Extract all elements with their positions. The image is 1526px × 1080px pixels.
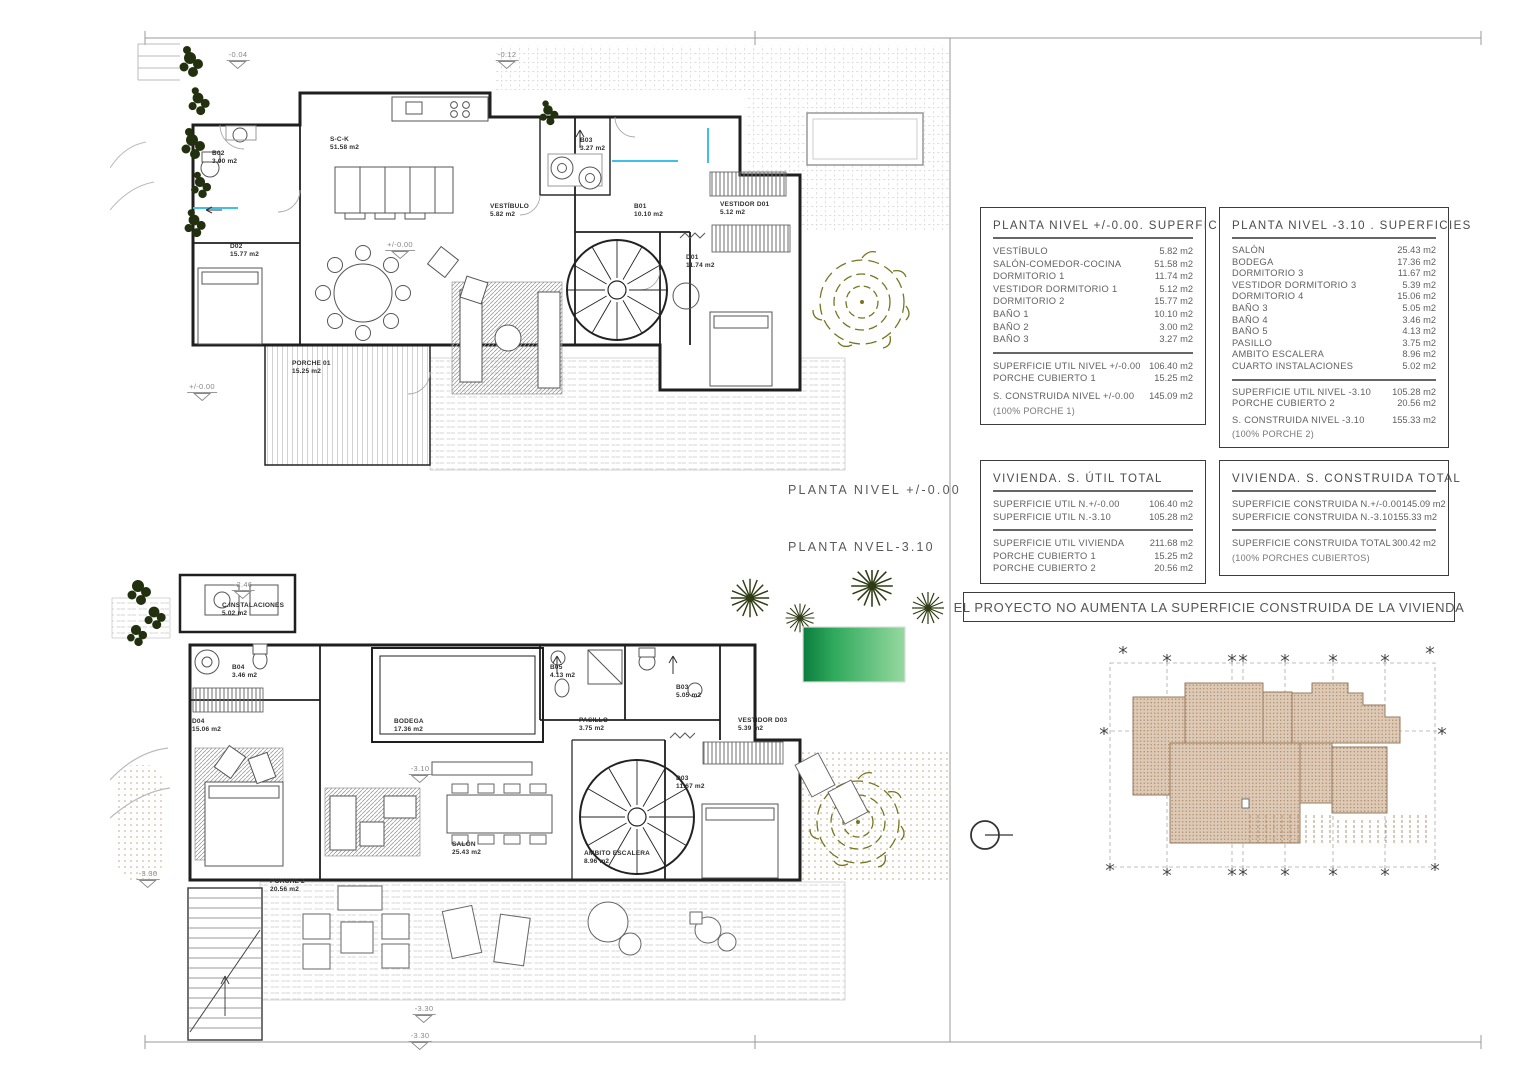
level-marker: +/-0.00	[385, 240, 415, 259]
level-marker: -3.30	[137, 869, 160, 888]
room-label: VESTÍBULO 5.82 m2	[490, 203, 529, 218]
room-label: D01 11.74 m2	[686, 254, 715, 269]
level-marker: -0.12	[496, 50, 519, 69]
table-summary-rows: SUPERFICIE UTIL NIVEL -3.10 105.28 m2 PO…	[1232, 387, 1436, 410]
room-label: PORCHE 2 20.56 m2	[270, 878, 305, 893]
project-note-banner: EL PROYECTO NO AUMENTA LA SUPERFICIE CON…	[963, 592, 1455, 622]
table-util-total: VIVIENDA. S. ÚTIL TOTAL SUPERFICIE UTIL …	[980, 460, 1206, 584]
table-row: SUPERFICIE UTIL NIVEL +/-0.00 106.40 m2	[993, 360, 1193, 373]
bed-d02	[198, 268, 262, 344]
table-row: VESTÍBULO 5.82 m2	[993, 245, 1193, 258]
table-row: PORCHE CUBIERTO 2 20.56 m2	[993, 562, 1193, 575]
porch-1	[265, 345, 430, 465]
level-marker-icon	[391, 251, 409, 259]
level-marker: -0.04	[227, 50, 250, 69]
table-row: BAÑO 1 10.10 m2	[993, 308, 1193, 321]
upper-floor-plan	[110, 40, 950, 480]
level-marker-icon	[411, 1042, 429, 1050]
wardrobe	[710, 172, 786, 196]
table-total-row: S. CONSTRUIDA NIVEL +/-0.00 145.09 m2	[993, 390, 1193, 403]
table-title: VIVIENDA. S. ÚTIL TOTAL	[993, 473, 1193, 492]
table-rows: SALÓN 25.43 m2 BODEGA 17.36 m2 DORMITORI…	[1232, 245, 1436, 373]
level-marker-icon	[498, 61, 516, 69]
table-row: SUPERFICIE CONSTRUIDA N.-3.10 155.33 m2	[1232, 511, 1436, 524]
level-marker: -3.10	[409, 764, 432, 783]
level-marker: -3.30	[413, 1004, 436, 1023]
roof-plan	[1090, 645, 1465, 880]
level-marker-icon	[415, 1015, 433, 1023]
room-label: D03 11.67 m2	[676, 775, 705, 790]
level-marker: -3.30	[409, 1031, 432, 1050]
table-separator	[1232, 379, 1436, 381]
table-separator	[1232, 529, 1436, 531]
level-marker-icon	[234, 591, 252, 599]
room-label: S-C-K 51.58 m2	[330, 136, 359, 151]
table-title: PLANTA NIVEL +/-0.00. SUPERFICIES	[993, 220, 1193, 239]
room-label: B03 5.05 m2	[676, 684, 701, 699]
table-superficies-nivel-310: PLANTA NIVEL -3.10 . SUPERFICIES SALÓN 2…	[1219, 207, 1449, 448]
table-row: SUPERFICIE UTIL N.+/-0.00 106.40 m2	[993, 498, 1193, 511]
room-label: C.INSTALACIONES 5.02 m2	[222, 602, 284, 617]
table-row: PORCHE CUBIERTO 1 15.25 m2	[993, 372, 1193, 385]
table-row: BAÑO 3 3.27 m2	[993, 333, 1193, 346]
level-marker-icon	[139, 880, 157, 888]
room-label: B03 3.27 m2	[580, 137, 605, 152]
table-row: BODEGA 17.36 m2	[1232, 257, 1436, 269]
room-label: VESTIDOR D01 5.12 m2	[720, 201, 769, 216]
level-marker: -2.46	[232, 580, 255, 599]
table-separator	[993, 529, 1193, 531]
room-label: B01 10.10 m2	[634, 203, 663, 218]
table-row: SUPERFICIE UTIL NIVEL -3.10 105.28 m2	[1232, 387, 1436, 399]
wardrobe	[712, 225, 790, 252]
level-marker-icon	[193, 393, 211, 401]
wardrobe	[703, 742, 783, 764]
level-marker: +/-0.00	[187, 382, 217, 401]
table-rows: VESTÍBULO 5.82 m2 SALÓN-COMEDOR-COCINA 5…	[993, 245, 1193, 346]
room-label: B04 3.46 m2	[232, 664, 257, 679]
pool	[803, 627, 905, 682]
table-construida-total: VIVIENDA. S. CONSTRUIDA TOTAL SUPERFICIE…	[1219, 460, 1449, 576]
table-total-row: SUPERFICIE CONSTRUIDA TOTAL 300.42 m2	[1232, 537, 1436, 550]
room-label: D02 15.77 m2	[230, 243, 259, 258]
room-label: D04 15.06 m2	[192, 718, 221, 733]
wardrobe	[193, 688, 263, 712]
table-row: BAÑO 2 3.00 m2	[993, 321, 1193, 334]
table-row: DORMITORIO 1 11.74 m2	[993, 270, 1193, 283]
table-note: (100% PORCHE 1)	[993, 406, 1193, 416]
table-row: PORCHE CUBIERTO 2 20.56 m2	[1232, 398, 1436, 410]
table-row: SUPERFICIE UTIL VIVIENDA 211.68 m2	[993, 537, 1193, 550]
room-label: SALÓN 25.43 m2	[452, 841, 481, 856]
plant-swirl	[813, 252, 909, 348]
bedroom-d03	[702, 804, 778, 878]
room-label: PORCHE 01 15.25 m2	[292, 360, 331, 375]
lower-plan-title: PLANTA NVEL-3.10	[788, 540, 935, 554]
upper-plan-title: PLANTA NIVEL +/-0.00	[788, 483, 961, 497]
table-title: VIVIENDA. S. CONSTRUIDA TOTAL	[1232, 473, 1436, 492]
table-note: (100% PORCHE 2)	[1232, 429, 1436, 439]
table-total-row: S. CONSTRUIDA NIVEL -3.10 155.33 m2	[1232, 415, 1436, 427]
upper-terrace-grid	[495, 45, 950, 90]
table-row: PASILLO 3.75 m2	[1232, 338, 1436, 350]
table-row: SALÓN 25.43 m2	[1232, 245, 1436, 257]
table-row: BAÑO 3 5.05 m2	[1232, 303, 1436, 315]
table-row: VESTIDOR DORMITORIO 1 5.12 m2	[993, 283, 1193, 296]
room-label: PASILLO 3.75 m2	[579, 717, 608, 732]
laundry-appliances	[548, 154, 602, 189]
upper-pool	[807, 113, 923, 165]
lower-floor-plan	[110, 570, 950, 1045]
table-row: AMBITO ESCALERA 8.96 m2	[1232, 349, 1436, 361]
table-row: VESTIDOR DORMITORIO 3 5.39 m2	[1232, 280, 1436, 292]
bedroom-d04	[195, 746, 283, 866]
north-symbol-icon	[965, 812, 1020, 857]
dining-table	[316, 246, 411, 341]
table-row: CUARTO INSTALACIONES 5.02 m2	[1232, 361, 1436, 373]
roof-surfaces	[1133, 683, 1400, 843]
table-superficies-nivel-0: PLANTA NIVEL +/-0.00. SUPERFICIES VESTÍB…	[980, 207, 1206, 425]
table-row: SALÓN-COMEDOR-COCINA 51.58 m2	[993, 258, 1193, 271]
table-summary-rows: SUPERFICIE UTIL VIVIENDA 211.68 m2 PORCH…	[993, 537, 1193, 575]
room-label: AMBITO ESCALERA 8.96 m2	[584, 850, 650, 865]
table-rows: SUPERFICIE UTIL N.+/-0.00 106.40 m2 SUPE…	[993, 498, 1193, 523]
table-note: (100% PORCHES CUBIERTOS)	[1232, 553, 1436, 563]
table-row: DORMITORIO 3 11.67 m2	[1232, 268, 1436, 280]
drawing-sheet: PLANTA NIVEL +/-0.00 PLANTA NVEL-3.10 B0…	[0, 0, 1526, 1080]
table-summary-rows: SUPERFICIE UTIL NIVEL +/-0.00 106.40 m2 …	[993, 360, 1193, 385]
table-row: DORMITORIO 2 15.77 m2	[993, 295, 1193, 308]
room-label: VESTIDOR D03 5.39 m2	[738, 717, 787, 732]
exterior-steps	[110, 44, 180, 210]
level-marker-icon	[229, 61, 247, 69]
table-row: BAÑO 4 3.46 m2	[1232, 315, 1436, 327]
exterior-stair	[188, 888, 262, 1040]
table-row: SUPERFICIE CONSTRUIDA N.+/-0.00 145.09 m…	[1232, 498, 1436, 511]
table-row: DORMITORIO 4 15.06 m2	[1232, 291, 1436, 303]
planting-strip	[118, 765, 162, 880]
level-marker-icon	[411, 775, 429, 783]
room-label: BODEGA 17.36 m2	[394, 718, 424, 733]
room-label: B02 3.00 m2	[212, 150, 237, 165]
table-rows: SUPERFICIE CONSTRUIDA N.+/-0.00 145.09 m…	[1232, 498, 1436, 523]
chimney	[1242, 799, 1249, 808]
table-row: PORCHE CUBIERTO 1 15.25 m2	[993, 550, 1193, 563]
table-separator	[993, 352, 1193, 354]
room-label: B05 4.13 m2	[550, 664, 575, 679]
table-row: BAÑO 5 4.13 m2	[1232, 326, 1436, 338]
table-row: SUPERFICIE UTIL N.-3.10 105.28 m2	[993, 511, 1193, 524]
table-title: PLANTA NIVEL -3.10 . SUPERFICIES	[1232, 220, 1436, 239]
